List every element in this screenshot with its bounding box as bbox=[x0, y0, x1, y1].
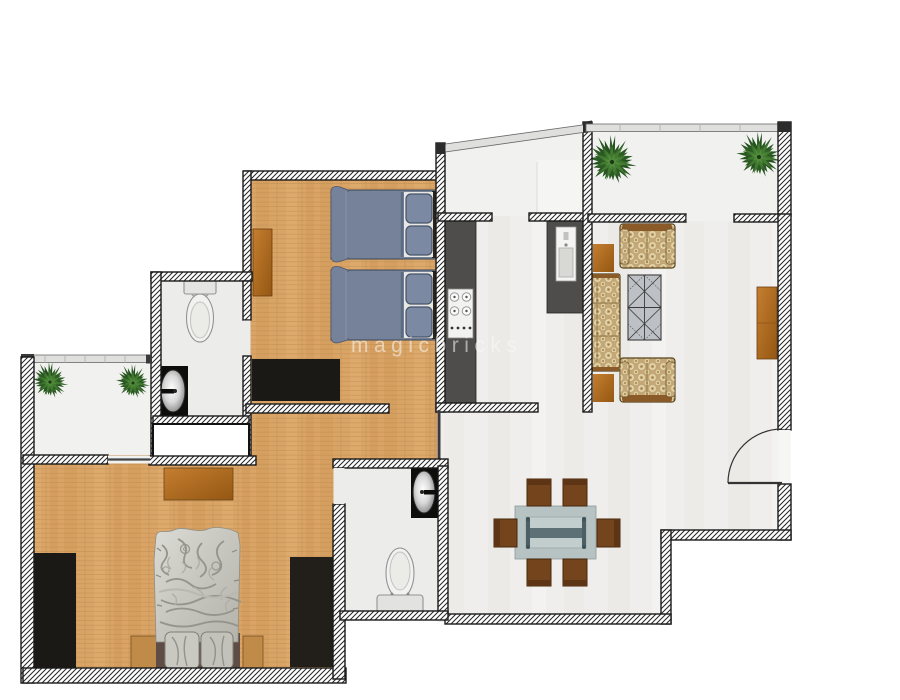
svg-text:magicbricks: magicbricks bbox=[351, 334, 522, 357]
